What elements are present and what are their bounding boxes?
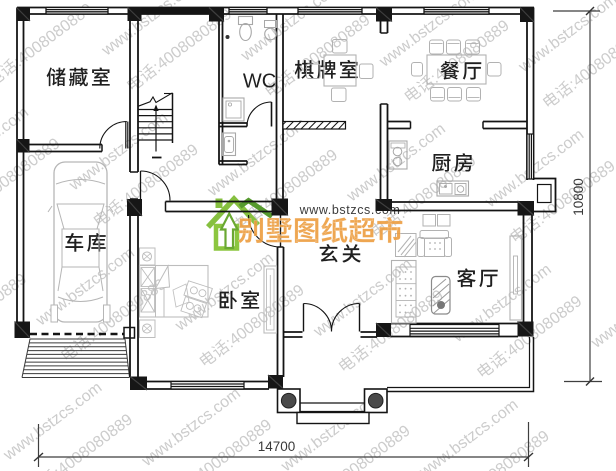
svg-text:14700: 14700 [258, 439, 296, 454]
svg-text:WC: WC [243, 71, 276, 93]
svg-text:10800: 10800 [571, 178, 586, 216]
